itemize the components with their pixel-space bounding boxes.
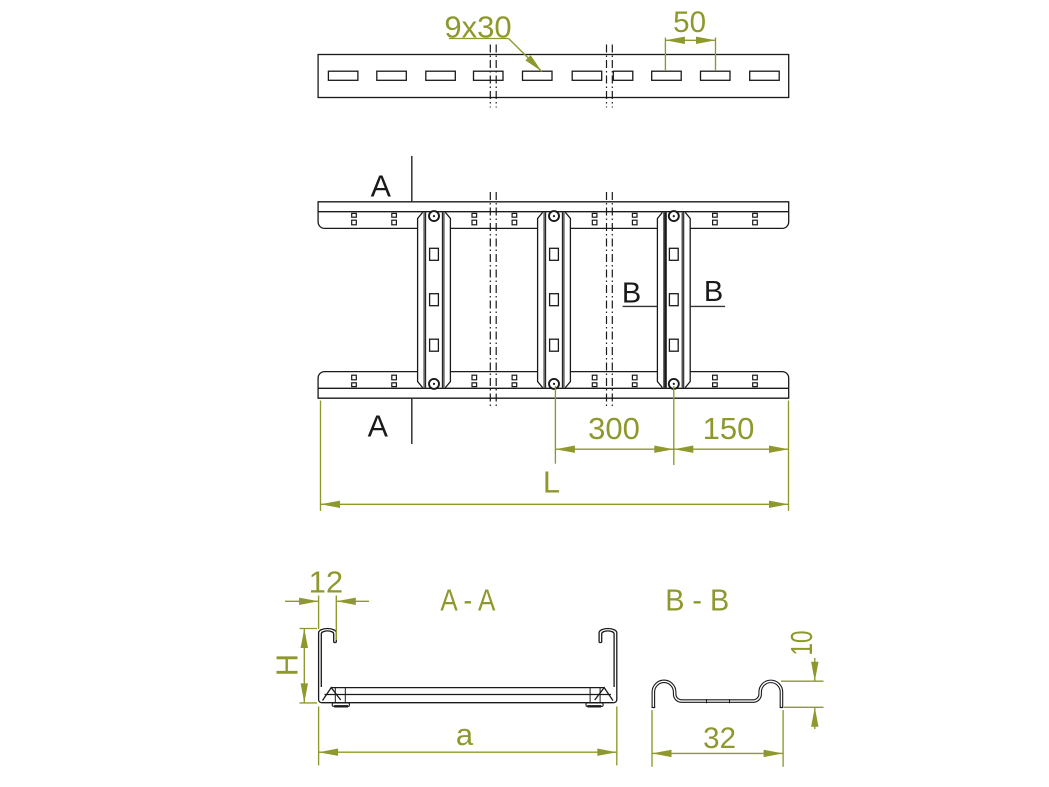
svg-text:300: 300	[588, 411, 640, 446]
svg-text:32: 32	[703, 722, 736, 755]
svg-text:B: B	[622, 277, 641, 309]
svg-text:B - B: B - B	[665, 583, 729, 618]
svg-text:a: a	[456, 717, 474, 752]
svg-text:H: H	[270, 654, 305, 676]
svg-text:A - A: A - A	[440, 583, 495, 618]
svg-text:B: B	[704, 276, 723, 308]
svg-text:L: L	[543, 465, 560, 500]
svg-text:12: 12	[309, 565, 343, 600]
svg-text:A: A	[368, 409, 389, 443]
svg-text:9x30: 9x30	[444, 10, 511, 45]
svg-text:50: 50	[673, 6, 706, 39]
svg-text:A: A	[371, 170, 392, 204]
svg-text:10: 10	[784, 631, 819, 656]
svg-text:150: 150	[703, 411, 755, 446]
